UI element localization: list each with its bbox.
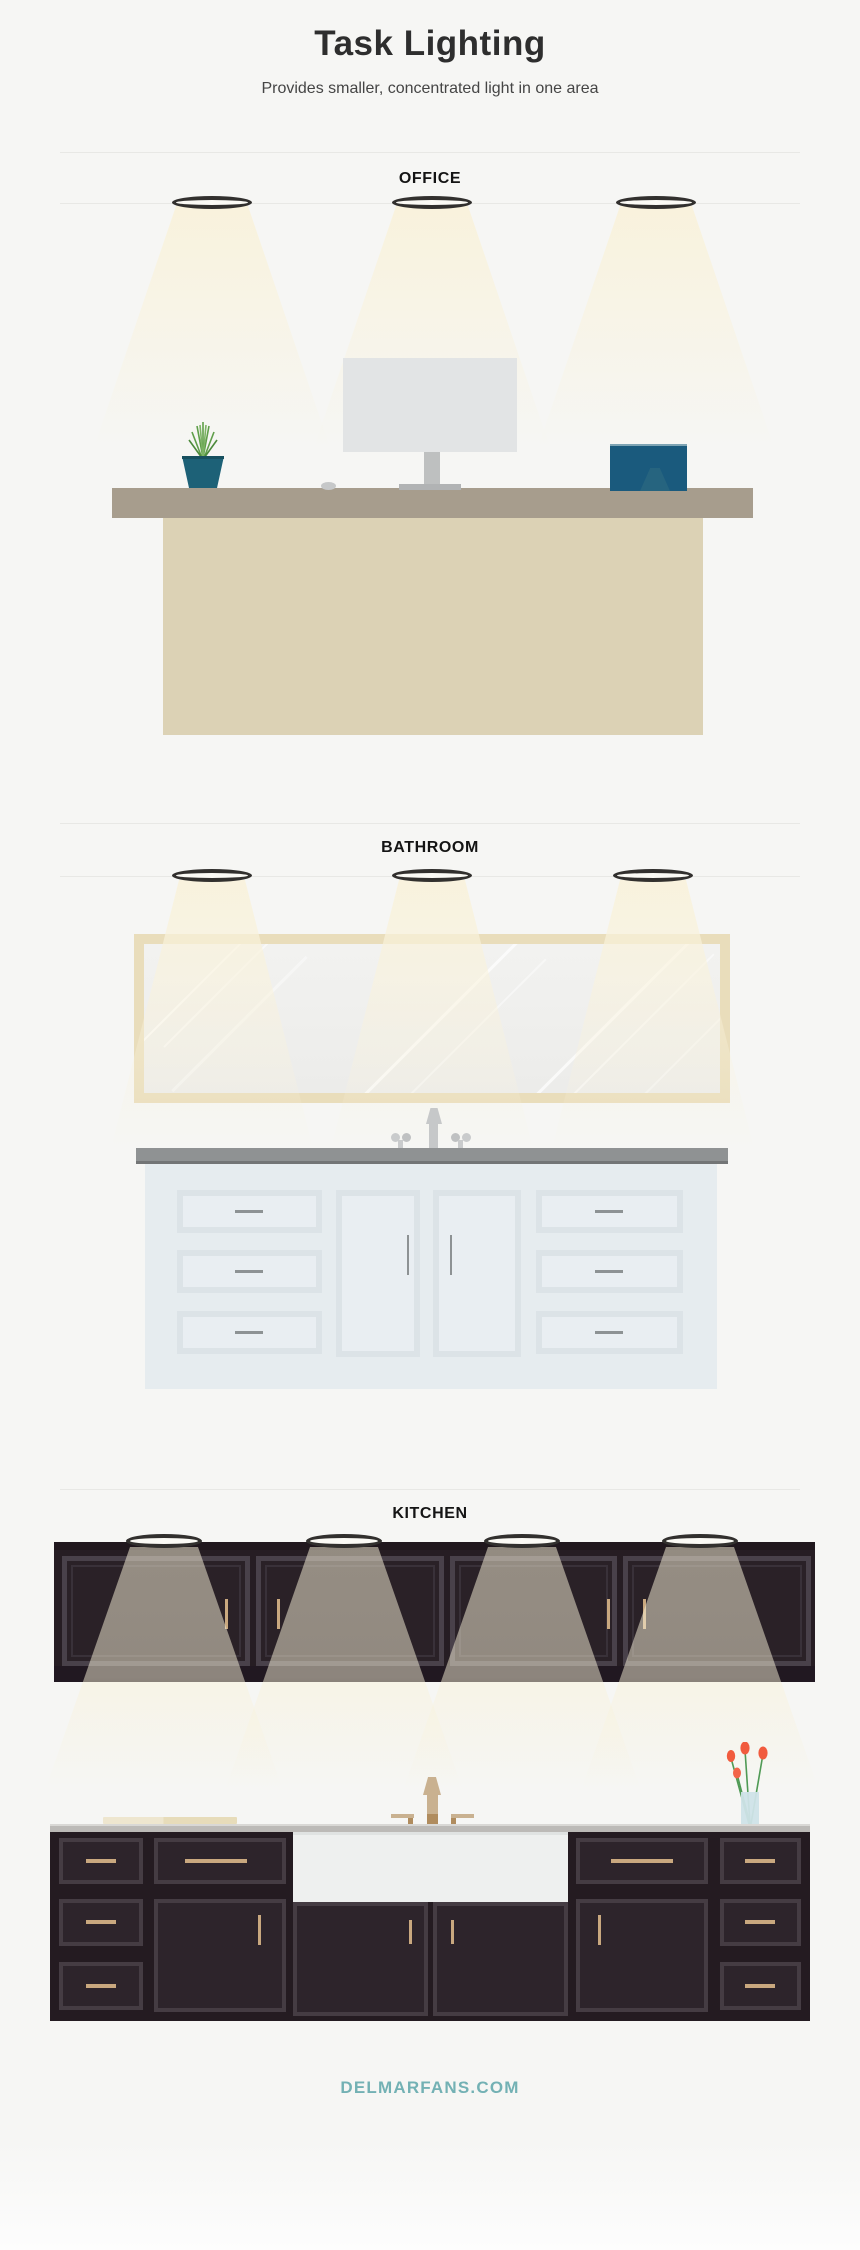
ceiling-light-icon — [616, 196, 696, 209]
ceiling-light-icon — [172, 869, 252, 882]
blue-book — [610, 444, 687, 491]
drawer-handle — [86, 1920, 116, 1924]
drawer-handle — [745, 1920, 775, 1924]
monitor-base — [399, 484, 461, 490]
divider — [60, 152, 800, 153]
monitor — [343, 358, 517, 452]
ceiling-light-icon — [662, 1534, 738, 1548]
cabinet-handle — [225, 1599, 228, 1629]
potted-plant — [178, 418, 228, 488]
ceiling-light-icon — [126, 1534, 202, 1548]
ceiling-light-icon — [484, 1534, 560, 1548]
cabinet-handle — [607, 1599, 610, 1629]
page-bottom-fade — [0, 2140, 860, 2250]
divider — [60, 1489, 800, 1490]
drawer-handle — [86, 1984, 116, 1988]
door-handle — [258, 1915, 261, 1945]
drawer-handle — [745, 1984, 775, 1988]
infographic-task-lighting: Task Lighting Provides smaller, concentr… — [0, 0, 860, 2250]
cutting-board — [103, 1817, 237, 1824]
page-title: Task Lighting — [0, 24, 860, 64]
ceiling-light-icon — [172, 196, 252, 209]
base-door — [293, 1902, 428, 2016]
base-door — [576, 1899, 708, 2012]
cabinet-handle — [277, 1599, 280, 1629]
drawer-handle — [185, 1859, 247, 1863]
door-handle — [451, 1920, 454, 1944]
page-subtitle: Provides smaller, concentrated light in … — [0, 80, 860, 98]
kitchen-base-cabinets — [50, 1824, 810, 2021]
door-handle — [409, 1920, 412, 1944]
drawer-handle — [745, 1859, 775, 1863]
bathroom-faucet-pipe — [429, 1122, 438, 1150]
drawer-handle — [611, 1859, 673, 1863]
book-highlight — [640, 468, 670, 491]
monitor-stand — [424, 452, 440, 485]
section-label-bathroom: BATHROOM — [0, 839, 860, 857]
flower-vase — [722, 1742, 780, 1826]
ceiling-light-icon — [392, 869, 472, 882]
mouse — [321, 482, 336, 490]
vanity-door — [433, 1190, 521, 1357]
base-door — [154, 1899, 286, 2012]
divider — [60, 823, 800, 824]
bathroom-counter — [136, 1148, 728, 1164]
drawer-handle — [86, 1859, 116, 1863]
ceiling-light-icon — [306, 1534, 382, 1548]
bathroom-vanity — [145, 1164, 717, 1389]
kitchen-counter — [50, 1824, 810, 1832]
ceiling-light-icon — [392, 196, 472, 209]
section-label-kitchen: KITCHEN — [0, 1505, 860, 1523]
section-label-office: OFFICE — [0, 170, 860, 188]
light-beam — [531, 206, 781, 468]
office-desk-body — [163, 518, 703, 735]
ceiling-light-icon — [613, 869, 693, 882]
farmhouse-sink — [293, 1832, 568, 1902]
door-handle — [598, 1915, 601, 1945]
office-desk-top — [112, 488, 753, 518]
brand-link[interactable]: DELMARFANS.COM — [0, 2078, 860, 2098]
